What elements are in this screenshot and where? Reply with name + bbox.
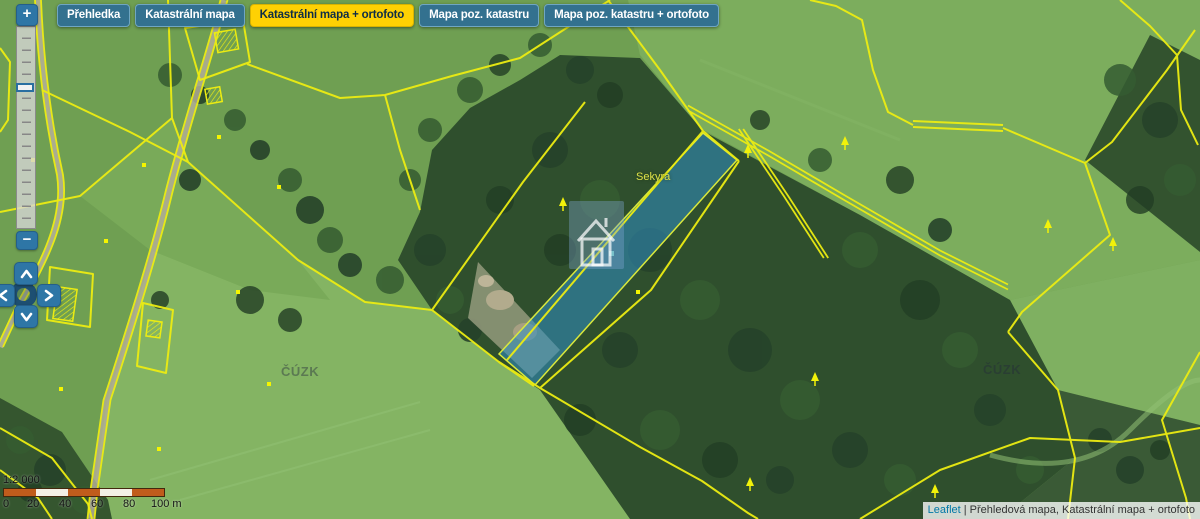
zoom-slider-track[interactable] xyxy=(16,26,36,229)
tab-katastralni-mapa[interactable]: Katastrální mapa xyxy=(135,4,244,27)
scale-tick-labels: 0 20 40 60 80 100 m xyxy=(3,498,183,511)
cuzk-watermark: ČÚZK xyxy=(983,362,1021,377)
chevron-left-icon xyxy=(0,289,8,302)
scale-tick: 60 xyxy=(91,498,103,510)
zoom-in-button[interactable]: + xyxy=(16,4,38,26)
map-viewport[interactable]: Přehledka Katastrální mapa Katastrální m… xyxy=(0,0,1200,519)
scale-tick: 40 xyxy=(59,498,71,510)
house-icon xyxy=(569,201,624,269)
attribution-separator: | xyxy=(964,504,967,516)
leaflet-link[interactable]: Leaflet xyxy=(928,504,961,516)
chevron-down-icon xyxy=(20,312,33,322)
tab-prehledka[interactable]: Přehledka xyxy=(57,4,130,27)
cuzk-watermark: ČÚZK xyxy=(281,364,319,379)
pan-down-button[interactable] xyxy=(14,305,38,328)
pan-up-button[interactable] xyxy=(14,262,38,285)
scale-control: 1:2 000 0 20 40 60 80 100 m xyxy=(3,474,183,511)
scale-tick: 20 xyxy=(27,498,39,510)
parcel-name-label: Sekyra xyxy=(636,171,670,183)
pan-left-button[interactable] xyxy=(0,284,15,307)
pan-right-button[interactable] xyxy=(37,284,61,307)
scale-ratio-label: 1:2 000 xyxy=(3,474,183,486)
tab-mapa-poz-katastru[interactable]: Mapa poz. katastru xyxy=(419,4,539,27)
chevron-up-icon xyxy=(20,269,33,279)
tab-katastralni-mapa-ortofoto[interactable]: Katastrální mapa + ortofoto xyxy=(250,4,414,27)
zoom-slider-ticks xyxy=(22,27,31,228)
scale-tick: 100 m xyxy=(151,498,182,510)
attribution-layers-text: Přehledová mapa, Katastrální mapa + orto… xyxy=(970,504,1195,516)
zoom-out-button[interactable]: − xyxy=(16,231,38,250)
basemap-tabs: Přehledka Katastrální mapa Katastrální m… xyxy=(57,4,719,27)
scale-bar xyxy=(3,488,165,497)
scale-tick: 0 xyxy=(3,498,9,510)
chevron-right-icon xyxy=(44,289,54,302)
zoom-slider-handle[interactable] xyxy=(16,83,34,92)
tab-mapa-poz-katastru-ortofoto[interactable]: Mapa poz. katastru + ortofoto xyxy=(544,4,719,27)
attribution-bar: Leaflet | Přehledová mapa, Katastrální m… xyxy=(923,502,1200,519)
scale-tick: 80 xyxy=(123,498,135,510)
home-watermark xyxy=(569,201,624,269)
